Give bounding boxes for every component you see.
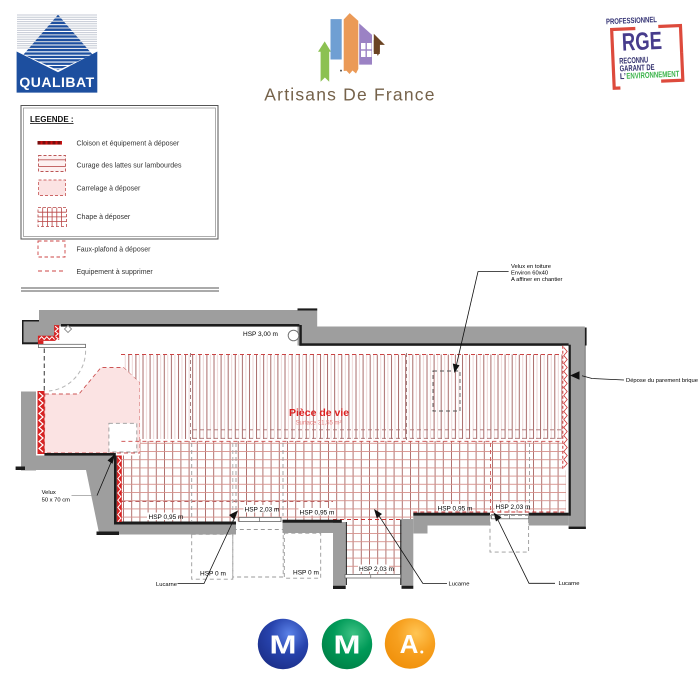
svg-text:Lucarne: Lucarne — [156, 582, 177, 588]
svg-text:Lucarne: Lucarne — [449, 582, 470, 588]
svg-text:M: M — [270, 630, 297, 660]
svg-text:HSP 3,00 m: HSP 3,00 m — [243, 331, 278, 338]
svg-text:Environ 60x40: Environ 60x40 — [511, 271, 548, 277]
svg-text:HSP 0,95 m: HSP 0,95 m — [149, 514, 184, 521]
svg-text:Dépose du parement brique: Dépose du parement brique — [626, 378, 698, 384]
svg-text:50 x 70 cm: 50 x 70 cm — [42, 498, 71, 504]
svg-text:HSP 0 m: HSP 0 m — [200, 571, 226, 578]
svg-text:HSP 2,03 m: HSP 2,03 m — [359, 566, 394, 573]
svg-text:Velux en toiture: Velux en toiture — [511, 264, 551, 270]
svg-text:HSP 2,03 m: HSP 2,03 m — [245, 507, 280, 514]
svg-text:Surface 31,55 m²: Surface 31,55 m² — [296, 421, 342, 427]
svg-text:HSP 0,95 m: HSP 0,95 m — [300, 510, 335, 517]
svg-text:Pièce de vie: Pièce de vie — [289, 407, 349, 419]
svg-text:Velux: Velux — [42, 490, 56, 496]
svg-text:A: A — [400, 629, 419, 659]
svg-text:Lucarne: Lucarne — [559, 581, 580, 587]
svg-text:HSP 0 m: HSP 0 m — [293, 570, 319, 577]
svg-text:M: M — [334, 630, 361, 660]
svg-text:HSP 0,95 m: HSP 0,95 m — [438, 506, 473, 513]
svg-text:HSP 2,03 m: HSP 2,03 m — [496, 504, 531, 511]
svg-text:A affiner en chantier: A affiner en chantier — [511, 277, 563, 283]
